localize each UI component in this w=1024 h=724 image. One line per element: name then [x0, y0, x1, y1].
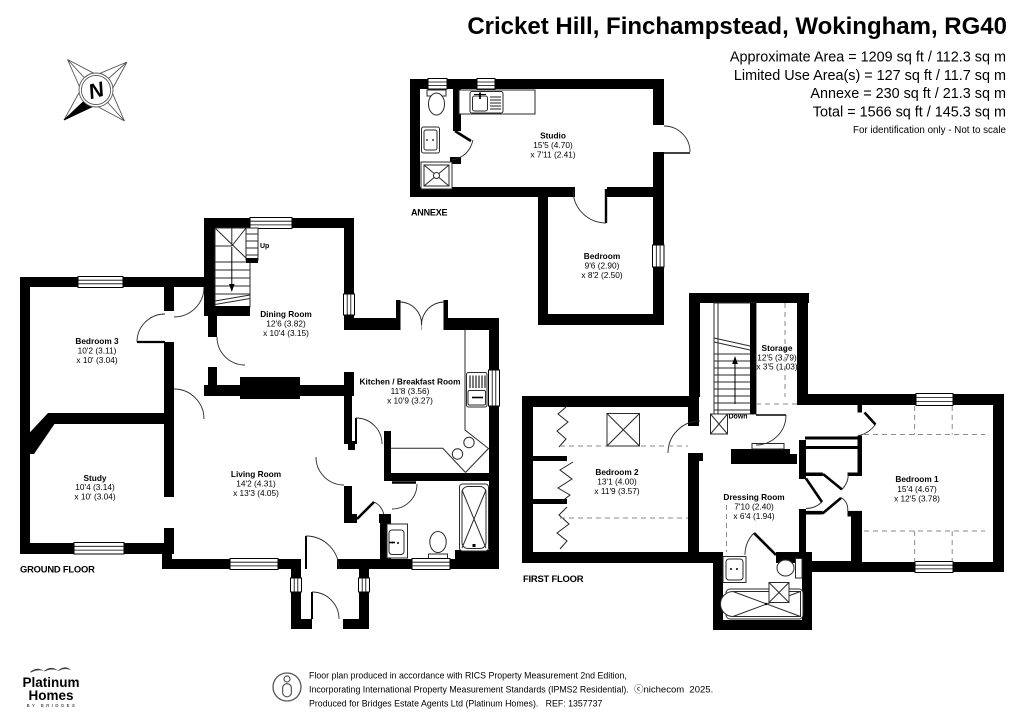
svg-text:GROUND FLOOR: GROUND FLOOR: [20, 564, 95, 575]
svg-text:Annexe = 230 sq ft / 21.3 sq m: Annexe = 230 sq ft / 21.3 sq m: [810, 86, 1006, 102]
svg-text:Approximate Area = 1209 sq ft: Approximate Area = 1209 sq ft / 112.3 sq…: [730, 50, 1006, 66]
svg-text:Cricket Hill, Finchampstead, W: Cricket Hill, Finchampstead, Wokingham, …: [467, 13, 1007, 40]
svg-text:ANNEXE: ANNEXE: [411, 208, 448, 218]
svg-text:Total = 1566 sq ft / 145.3 sq: Total = 1566 sq ft / 145.3 sq m: [813, 105, 1006, 121]
svg-text:Homes: Homes: [28, 688, 73, 703]
svg-text:Storage: Storage: [762, 343, 793, 353]
svg-text:x 10' (3.04): x 10' (3.04): [74, 492, 115, 502]
svg-text:14'2 (4.31): 14'2 (4.31): [236, 479, 276, 489]
svg-text:12'6 (3.82): 12'6 (3.82): [266, 319, 306, 329]
svg-text:Produced for Bridges Estate Ag: Produced for Bridges Estate Agents Ltd (…: [309, 699, 602, 709]
svg-text:x 3'5 (1.03): x 3'5 (1.03): [756, 362, 797, 372]
svg-text:Dining Room: Dining Room: [260, 309, 312, 319]
svg-text:15'5 (4.70): 15'5 (4.70): [533, 140, 573, 150]
svg-text:10'4 (3.14): 10'4 (3.14): [75, 482, 115, 492]
svg-text:Living Room: Living Room: [231, 469, 281, 479]
svg-text:Up: Up: [260, 243, 269, 250]
svg-text:13'1 (4.00): 13'1 (4.00): [597, 477, 637, 487]
svg-text:Limited Use Area(s) = 127 sq f: Limited Use Area(s) = 127 sq ft / 11.7 s…: [734, 68, 1006, 84]
svg-text:x 10'4 (3.15): x 10'4 (3.15): [263, 328, 309, 338]
svg-text:Down: Down: [729, 414, 748, 421]
svg-text:x 13'3 (4.05): x 13'3 (4.05): [233, 488, 279, 498]
svg-text:Dressing Room: Dressing Room: [723, 492, 784, 502]
svg-text:ⓒnichecom 2025.: ⓒnichecom 2025.: [634, 685, 713, 696]
svg-text:FIRST FLOOR: FIRST FLOOR: [523, 573, 584, 584]
svg-text:9'6 (2.90): 9'6 (2.90): [585, 261, 620, 271]
svg-text:Incorporating International Pr: Incorporating International Property Mea…: [309, 685, 629, 695]
svg-text:x 7'11 (2.41): x 7'11 (2.41): [530, 150, 575, 160]
svg-text:For identification only - Not: For identification only - Not to scale: [853, 125, 1007, 136]
svg-text:11'8 (3.56): 11'8 (3.56): [391, 386, 430, 396]
svg-text:10'2 (3.11): 10'2 (3.11): [78, 346, 117, 356]
svg-text:x 10' (3.04): x 10' (3.04): [76, 355, 117, 365]
svg-text:Floor plan produced in accorda: Floor plan produced in accordance with R…: [309, 671, 627, 681]
svg-text:7'10 (2.40): 7'10 (2.40): [734, 502, 774, 512]
svg-text:15'4 (4.67): 15'4 (4.67): [897, 484, 937, 494]
svg-text:Kitchen / Breakfast Room: Kitchen / Breakfast Room: [360, 377, 461, 387]
svg-text:Bedroom: Bedroom: [584, 251, 620, 261]
svg-text:x 8'2 (2.50): x 8'2 (2.50): [581, 270, 622, 280]
svg-text:Bedroom 3: Bedroom 3: [75, 336, 119, 346]
svg-text:Studio: Studio: [540, 131, 566, 141]
svg-text:Bedroom 1: Bedroom 1: [895, 474, 939, 484]
svg-text:x 11'9 (3.57): x 11'9 (3.57): [594, 486, 639, 496]
svg-text:x 6'4 (1.94): x 6'4 (1.94): [733, 511, 774, 521]
svg-text:Bedroom 2: Bedroom 2: [595, 467, 639, 477]
svg-text:x 10'9 (3.27): x 10'9 (3.27): [387, 396, 433, 406]
svg-text:x 12'5 (3.78): x 12'5 (3.78): [894, 494, 940, 504]
svg-text:BY BRIDGES: BY BRIDGES: [27, 703, 78, 708]
